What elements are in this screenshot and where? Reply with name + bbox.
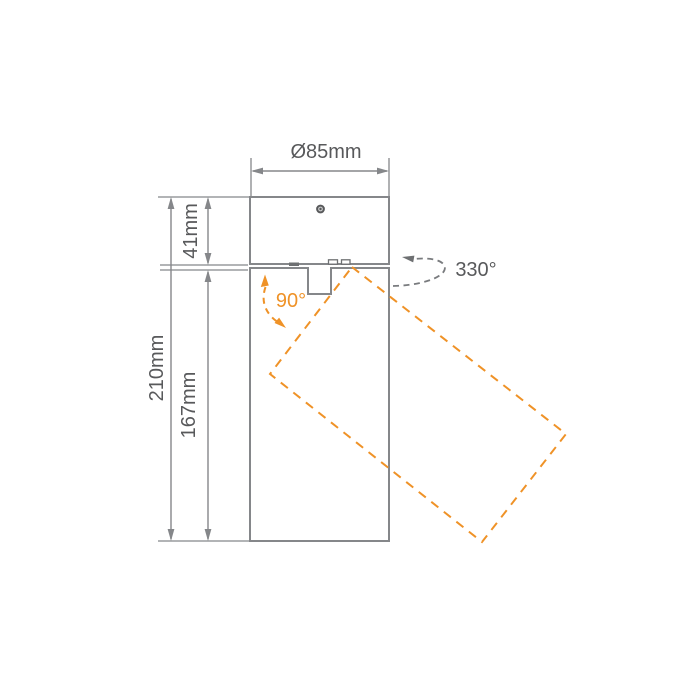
diagram-canvas: 90° 330° Ø85mm 210mm <box>0 0 700 700</box>
tilt-angle-label: 90° <box>276 290 306 312</box>
body-arrow-up-icon <box>205 270 212 282</box>
rotation-arc <box>393 259 445 286</box>
canopy-arrow-down-icon <box>205 253 212 265</box>
middle-extension-lines <box>160 265 248 270</box>
diameter-extension-lines <box>251 158 389 196</box>
screw-icon <box>317 206 324 213</box>
rotation-indicator: 330° <box>393 256 497 286</box>
rotation-arrow-icon <box>402 256 414 263</box>
diameter-label: Ø85mm <box>290 141 361 163</box>
overall-height-label: 210mm <box>146 335 168 402</box>
dimension-diameter: Ø85mm <box>251 141 389 196</box>
overall-arrow-up-icon <box>168 197 175 209</box>
fixture-outline <box>250 197 389 541</box>
dim-arrow-right-icon <box>377 168 389 175</box>
dimension-heights: 210mm 41mm 167mm <box>146 197 250 541</box>
canopy-arrow-up-icon <box>205 197 212 209</box>
canopy-height-label: 41mm <box>180 203 202 259</box>
overall-arrow-down-icon <box>168 529 175 541</box>
body-height-label: 167mm <box>178 372 200 439</box>
body-arrow-down-icon <box>205 529 212 541</box>
rotation-angle-label: 330° <box>455 259 496 281</box>
dim-arrow-left-icon <box>251 168 263 175</box>
dimension-diagram: 90° 330° Ø85mm 210mm <box>0 0 700 700</box>
